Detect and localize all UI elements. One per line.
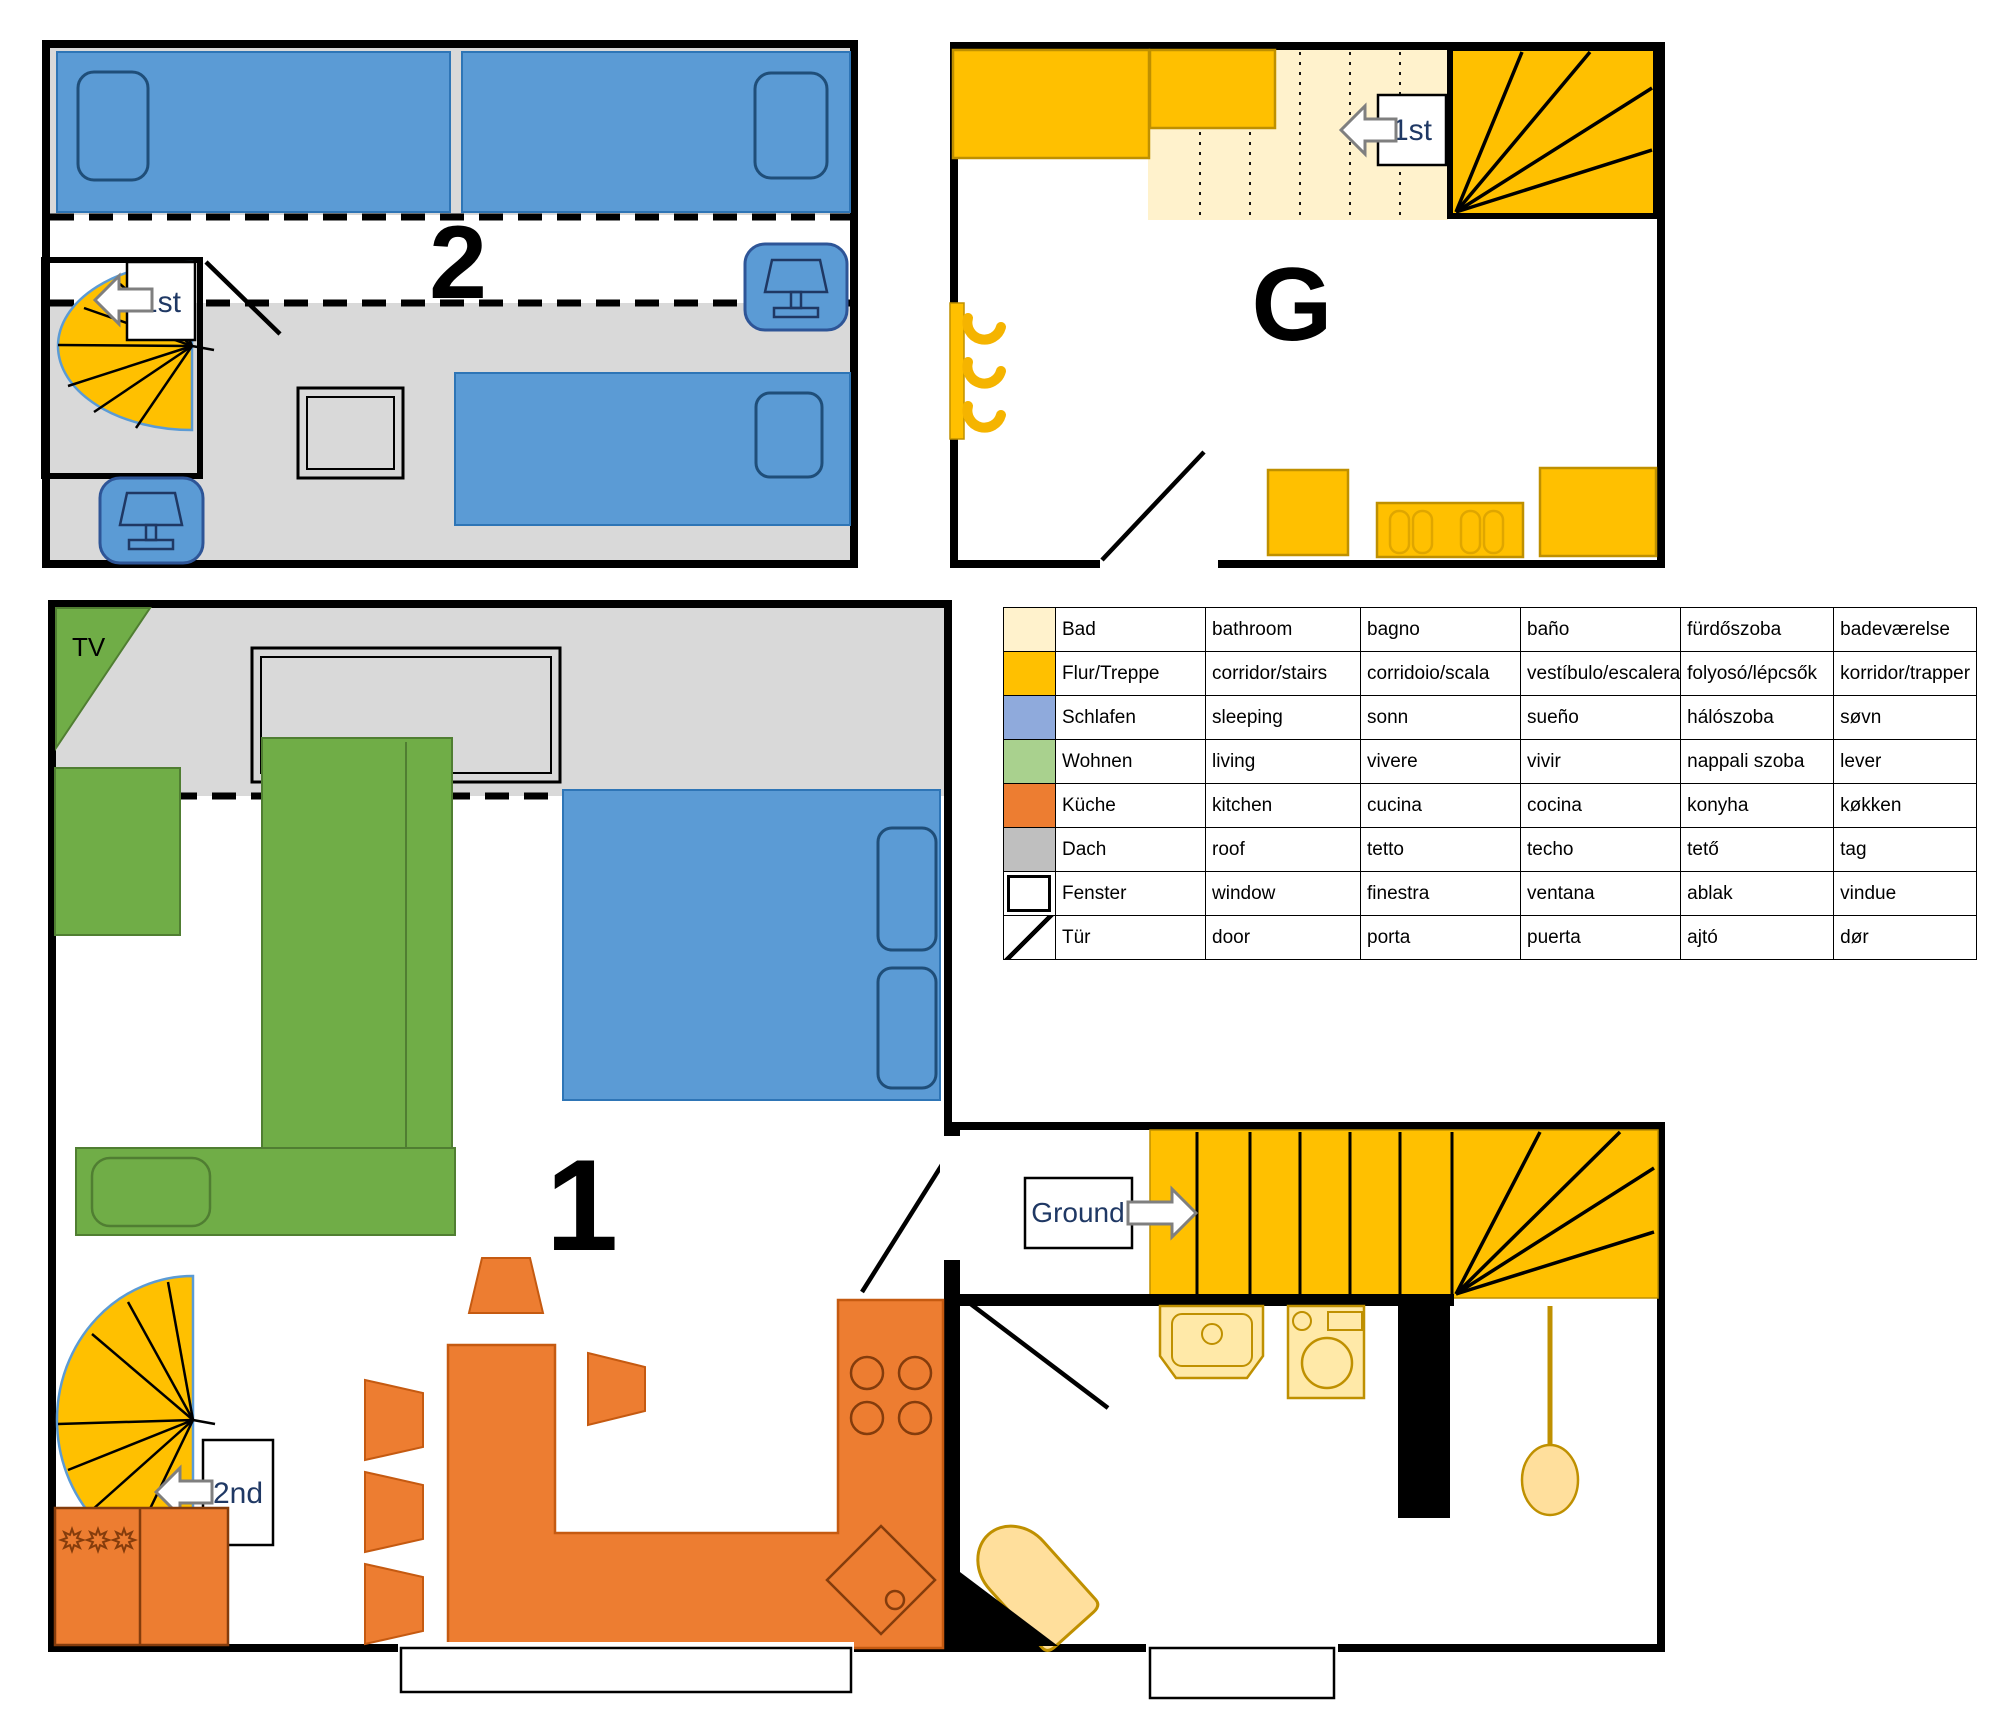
- legend-cell: vivir: [1521, 740, 1681, 784]
- floor1-chair-left-2: [365, 1472, 423, 1552]
- window-swatch: [1004, 872, 1056, 916]
- legend-cell: ablak: [1681, 872, 1834, 916]
- bathroom-swatch: [1004, 608, 1056, 652]
- legend-cell: Schlafen: [1056, 696, 1206, 740]
- floor2-bed-right: [462, 52, 850, 212]
- legend-cell: søvn: [1834, 696, 1977, 740]
- legend-row-roof: Dach roof tetto techo tető tag: [1004, 828, 1977, 872]
- floor2-lamp-right-icon: [745, 244, 847, 330]
- legend-row-window: Fenster window finestra ventana ablak vi…: [1004, 872, 1977, 916]
- legend-cell: door: [1206, 916, 1361, 960]
- floor1-label: 1: [546, 1132, 618, 1278]
- floorG-corridor-block-left: [953, 50, 1149, 158]
- floor1-plan: TV 1 2nd: [52, 604, 950, 1692]
- shared-door-opening: [940, 1136, 964, 1260]
- roof-swatch: [1004, 828, 1056, 872]
- legend-cell: sueño: [1521, 696, 1681, 740]
- legend-row-bathroom: Bad bathroom bagno baño fürdőszoba badev…: [1004, 608, 1977, 652]
- legend-cell: baño: [1521, 608, 1681, 652]
- floor2-window-icon: [298, 388, 403, 478]
- legend-cell: Flur/Treppe: [1056, 652, 1206, 696]
- legend-cell: finestra: [1361, 872, 1521, 916]
- legend-cell: hálószoba: [1681, 696, 1834, 740]
- floor1-chair-left-1: [365, 1380, 423, 1460]
- legend-row-corridor: Flur/Treppe corridor/stairs corridoio/sc…: [1004, 652, 1977, 696]
- legend-row-sleeping: Schlafen sleeping sonn sueño hálószoba s…: [1004, 696, 1977, 740]
- legend-cell: sleeping: [1206, 696, 1361, 740]
- ground-plan: Ground: [940, 1126, 1661, 1698]
- legend-cell: cucina: [1361, 784, 1521, 828]
- floorG-cabinet: [1268, 470, 1348, 555]
- living-swatch: [1004, 740, 1056, 784]
- floorG-corridor-block-right: [1150, 50, 1275, 128]
- floor1-stove: [55, 1508, 228, 1645]
- floorG-cabinet-right: [1540, 468, 1656, 556]
- legend-cell: Tür: [1056, 916, 1206, 960]
- legend-cell: tető: [1681, 828, 1834, 872]
- floorG-staircase-icon: [1450, 48, 1656, 216]
- floor2-lamp-left-icon: [100, 478, 203, 563]
- legend-cell: techo: [1521, 828, 1681, 872]
- floor1-double-bed: [563, 790, 940, 1100]
- legend-cell: tag: [1834, 828, 1977, 872]
- house-floorplans-page: 2 1st: [0, 0, 2000, 1734]
- legend-cell: bagno: [1361, 608, 1521, 652]
- floor1-doorstep: [401, 1648, 851, 1692]
- kitchen-swatch: [1004, 784, 1056, 828]
- legend-cell: ajtó: [1681, 916, 1834, 960]
- legend-cell: køkken: [1834, 784, 1977, 828]
- floor2-plan: 2 1st: [44, 44, 854, 564]
- legend-cell: living: [1206, 740, 1361, 784]
- legend-cell: Bad: [1056, 608, 1206, 652]
- floorG-plan: 1st G: [950, 46, 1661, 568]
- legend-cell: bathroom: [1206, 608, 1361, 652]
- floorG-entry-opening: [1100, 552, 1218, 568]
- legend-cell: folyosó/lépcsők: [1681, 652, 1834, 696]
- legend-cell: ventana: [1521, 872, 1681, 916]
- corridor-swatch: [1004, 652, 1056, 696]
- legend-cell: Wohnen: [1056, 740, 1206, 784]
- legend-cell: cocina: [1521, 784, 1681, 828]
- legend-cell: puerta: [1521, 916, 1681, 960]
- legend-row-kitchen: Küche kitchen cucina cocina konyha køkke…: [1004, 784, 1977, 828]
- legend-cell: kitchen: [1206, 784, 1361, 828]
- legend-cell: window: [1206, 872, 1361, 916]
- legend-cell: sonn: [1361, 696, 1521, 740]
- legend-cell: vestíbulo/escalera: [1521, 652, 1681, 696]
- legend-cell: lever: [1834, 740, 1977, 784]
- legend-cell: dør: [1834, 916, 1977, 960]
- ground-wall-column: [1398, 1306, 1450, 1518]
- floor1-tv-label: TV: [72, 632, 106, 662]
- legend-cell: corridoio/scala: [1361, 652, 1521, 696]
- floor1-chair-left-3: [365, 1564, 423, 1644]
- floor1-sideboard: [55, 768, 180, 935]
- floor1-chair-top: [469, 1258, 543, 1313]
- legend-cell: fürdőszoba: [1681, 608, 1834, 652]
- legend-cell: nappali szoba: [1681, 740, 1834, 784]
- ground-wall-bar: [952, 1294, 1454, 1306]
- legend-cell: Dach: [1056, 828, 1206, 872]
- floor2-label: 2: [429, 205, 487, 321]
- legend-row-door: Tür door porta puerta ajtó dør: [1004, 916, 1977, 960]
- legend-row-living: Wohnen living vivere vivir nappali szoba…: [1004, 740, 1977, 784]
- legend-cell: tetto: [1361, 828, 1521, 872]
- floorG-stair-dest-label: 1st: [1392, 114, 1433, 147]
- legend-cell: vivere: [1361, 740, 1521, 784]
- legend-cell: porta: [1361, 916, 1521, 960]
- legend-cell: konyha: [1681, 784, 1834, 828]
- ground-washbasin-icon: [1160, 1306, 1263, 1378]
- legend-cell: Fenster: [1056, 872, 1206, 916]
- floorG-label: G: [1252, 247, 1333, 363]
- legend-cell: Küche: [1056, 784, 1206, 828]
- floor1-stair-dest-label: 2nd: [213, 1477, 263, 1510]
- floorG-shoe-rack: [1377, 503, 1523, 557]
- ground-stair-dest-label: Ground: [1031, 1197, 1124, 1228]
- ground-staircase-icon: [1150, 1130, 1658, 1298]
- legend-cell: vindue: [1834, 872, 1977, 916]
- legend-table: Bad bathroom bagno baño fürdőszoba badev…: [1003, 607, 1977, 960]
- legend-cell: badeværelse: [1834, 608, 1977, 652]
- ground-doorstep: [1150, 1648, 1334, 1698]
- ground-washing-machine-icon: [1288, 1306, 1364, 1398]
- legend-cell: korridor/trapper: [1834, 652, 1977, 696]
- sleeping-swatch: [1004, 696, 1056, 740]
- floor2-bed-left: [57, 52, 450, 212]
- legend-cell: roof: [1206, 828, 1361, 872]
- legend-cell: corridor/stairs: [1206, 652, 1361, 696]
- floor2-bed-lower: [455, 373, 850, 525]
- door-swatch: [1004, 916, 1056, 960]
